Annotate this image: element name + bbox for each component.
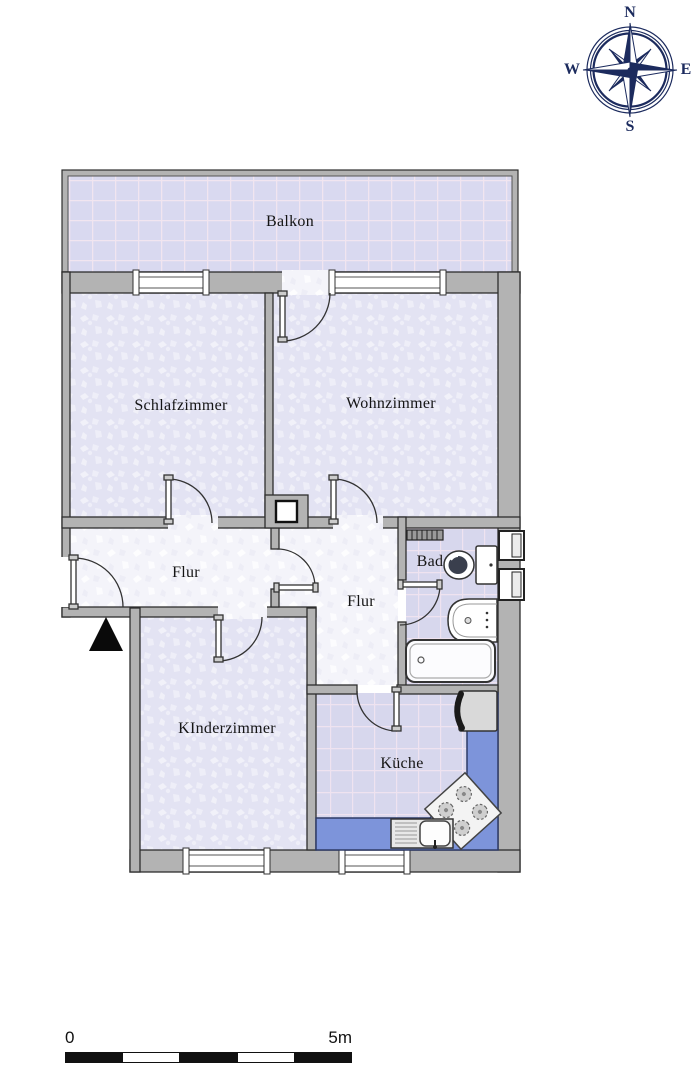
room-label-kueche: Küche: [380, 755, 423, 773]
scale-segment: [295, 1053, 351, 1062]
room-label-bad: Bad: [417, 553, 444, 571]
compass-rose-icon: [0, 0, 700, 1072]
scale-bar: 0 5m: [65, 1028, 352, 1066]
floorplan-canvas: N E S W Balkon Schlafzimmer Wohnzimmer F…: [0, 0, 700, 1072]
scale-segment: [122, 1053, 180, 1062]
compass-n-label: N: [624, 4, 636, 22]
scale-bar-segments: [65, 1052, 352, 1063]
room-label-wohnzimmer: Wohnzimmer: [346, 395, 436, 413]
compass-w-label: W: [564, 61, 580, 79]
room-label-flur-links: Flur: [172, 564, 200, 582]
scale-start-label: 0: [65, 1028, 74, 1048]
scale-end-label: 5m: [328, 1028, 352, 1048]
room-label-kinderzimmer: KInderzimmer: [178, 720, 276, 738]
scale-segment: [66, 1053, 122, 1062]
room-label-schlafzimmer: Schlafzimmer: [134, 397, 227, 415]
scale-segment: [237, 1053, 295, 1062]
compass-s-label: S: [626, 118, 635, 136]
compass-e-label: E: [681, 61, 692, 79]
room-label-flur-mitte: Flur: [347, 593, 375, 611]
room-label-balkon: Balkon: [266, 213, 314, 231]
scale-segment: [180, 1053, 236, 1062]
